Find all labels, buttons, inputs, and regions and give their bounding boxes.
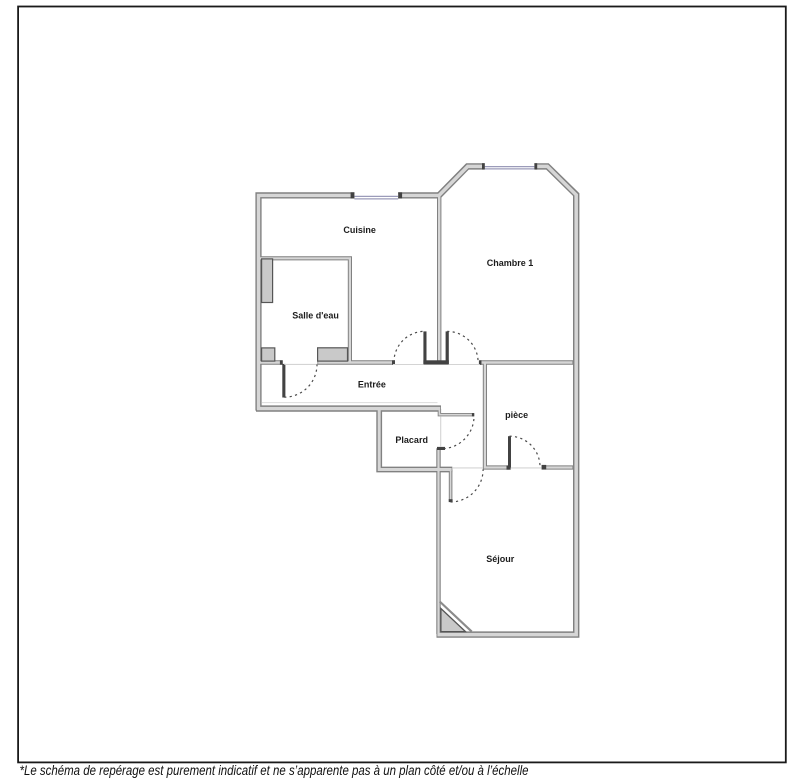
svg-text:Séjour: Séjour xyxy=(486,554,515,564)
svg-text:Salle d'eau: Salle d'eau xyxy=(292,311,339,321)
svg-text:Cuisine: Cuisine xyxy=(343,225,376,235)
svg-text:Placard: Placard xyxy=(395,435,428,445)
svg-text:pièce: pièce xyxy=(505,410,528,420)
svg-text:Entrée: Entrée xyxy=(358,380,386,390)
svg-text:*Le schéma de repérage est pur: *Le schéma de repérage est purement indi… xyxy=(20,763,529,778)
svg-text:Chambre 1: Chambre 1 xyxy=(487,258,534,268)
